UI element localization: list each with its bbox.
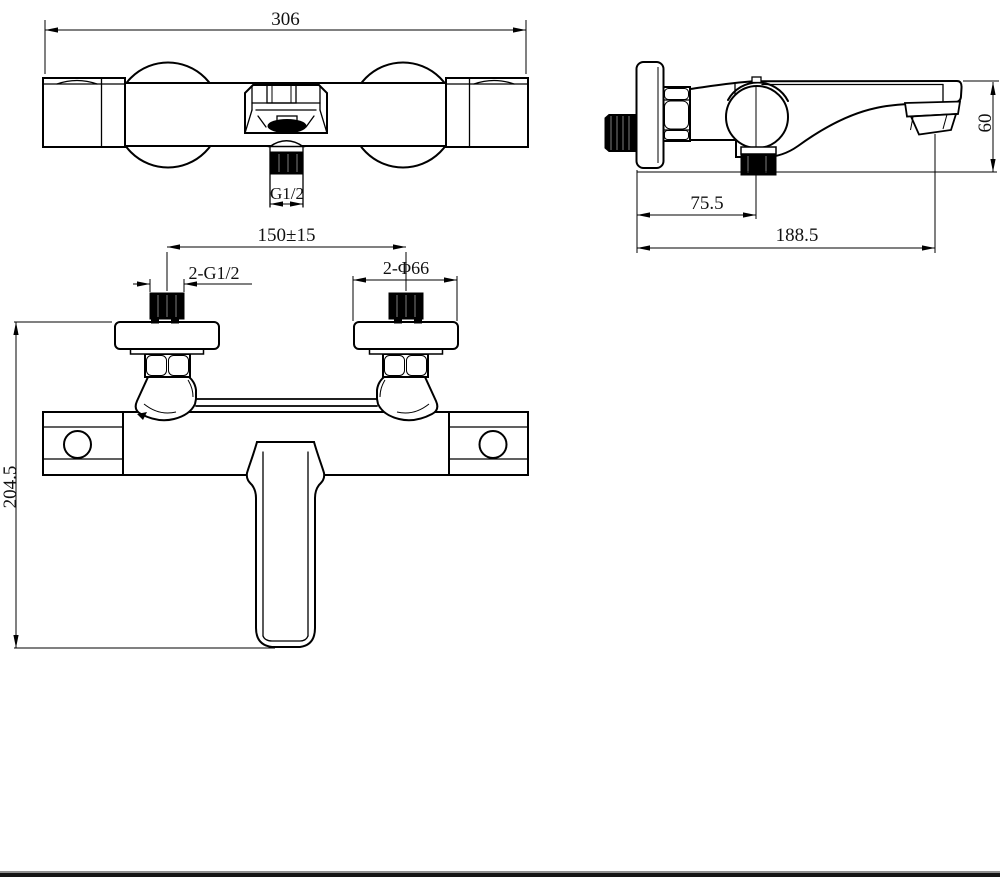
- dimension-306: 306: [45, 9, 526, 74]
- dim-overall-width-label: 306: [271, 9, 300, 30]
- view-front-lower: 150±15 2-G1/2 2-Φ66 204.5: [0, 225, 528, 648]
- inlet-assembly-left: [115, 293, 219, 420]
- view-front-upper: 306 G1/2: [43, 9, 528, 207]
- dim-inlet-spacing-label: 150±15: [258, 225, 316, 246]
- side-wall-flange: [637, 62, 664, 168]
- diverter-outlet-dark: [268, 120, 306, 133]
- hose-outlet-stub: [741, 147, 776, 175]
- side-hex-nut: [663, 87, 690, 141]
- valve-bar-left-cap: [43, 78, 125, 147]
- valve-top-nub: [752, 77, 761, 83]
- side-wall-inlet-thread: [605, 115, 635, 152]
- technical-drawing: 306 G1/2: [0, 0, 1000, 877]
- inlet-assembly-right: [354, 293, 458, 420]
- drawing-sheet: 306 G1/2: [0, 0, 1000, 877]
- dim-inlet-thread-label: 2-G1/2: [189, 263, 240, 283]
- dim-wall-to-outlet-label: 188.5: [776, 225, 819, 246]
- inlet-hex-nut: [145, 354, 190, 377]
- dimension-g12: G1/2: [270, 184, 304, 207]
- footer-bar-highlight: [0, 871, 1000, 873]
- dim-overall-height-label: 204.5: [0, 466, 21, 509]
- dim-wall-to-valve-label: 75.5: [690, 193, 723, 214]
- dim-flange-diameter-label: 2-Φ66: [383, 258, 429, 278]
- dimension-204-5: 204.5: [0, 322, 275, 648]
- spout-nozzle: [905, 102, 960, 135]
- dim-spout-drop-label: 60: [975, 114, 996, 133]
- view-side: 75.5 188.5 60: [605, 62, 999, 253]
- diverter-block: [245, 85, 327, 133]
- bath-spout: [247, 442, 324, 647]
- dimension-2g12: 2-G1/2: [133, 263, 252, 292]
- dimension-75-5: 75.5: [637, 170, 756, 253]
- outlet-thread-black: [271, 152, 303, 174]
- valve-bar-right-cap: [446, 78, 528, 147]
- inlet-tube: [196, 399, 377, 406]
- inlet-wall-flange: [115, 322, 219, 349]
- valve-cap-circle: [726, 86, 788, 148]
- footer-bar: [0, 873, 1000, 877]
- dim-outlet-thread-label: G1/2: [270, 184, 304, 203]
